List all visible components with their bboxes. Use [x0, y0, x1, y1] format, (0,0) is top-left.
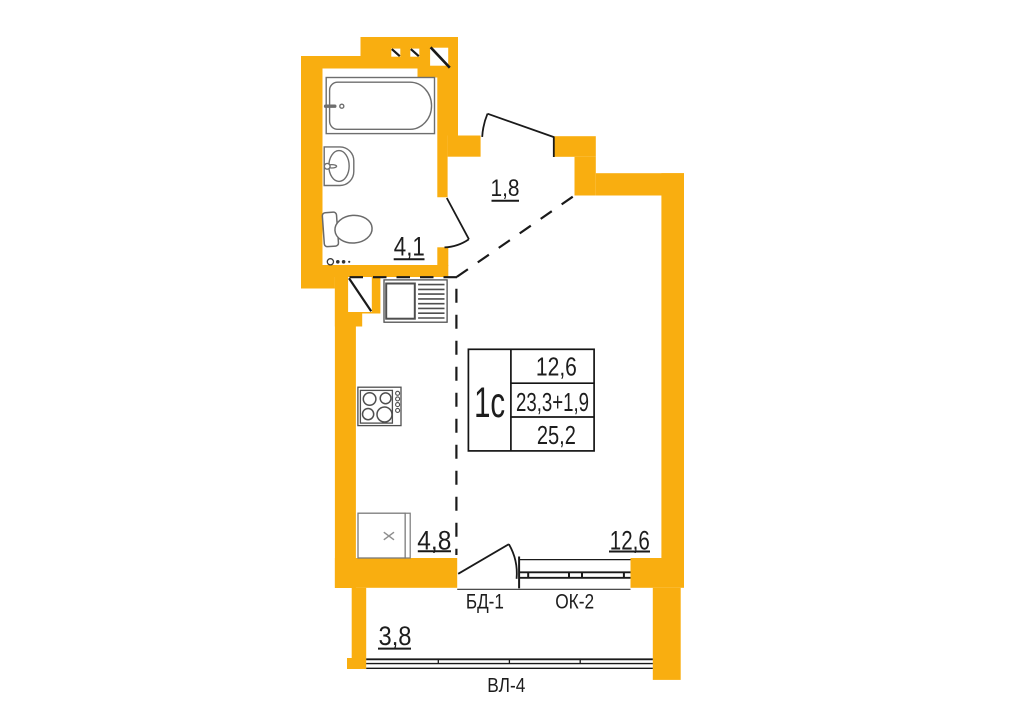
- svg-text:ВЛ-4: ВЛ-4: [487, 675, 525, 697]
- svg-text:1с: 1с: [474, 379, 505, 427]
- svg-text:3,8: 3,8: [379, 621, 412, 651]
- svg-text:12,6: 12,6: [536, 351, 577, 381]
- svg-text:БД-1: БД-1: [466, 591, 504, 614]
- svg-text:ОК-2: ОК-2: [555, 591, 594, 614]
- svg-text:4,1: 4,1: [394, 232, 425, 262]
- svg-text:23,3+1,9: 23,3+1,9: [516, 387, 589, 417]
- svg-text:25,2: 25,2: [537, 420, 576, 450]
- svg-text:1,8: 1,8: [491, 175, 520, 202]
